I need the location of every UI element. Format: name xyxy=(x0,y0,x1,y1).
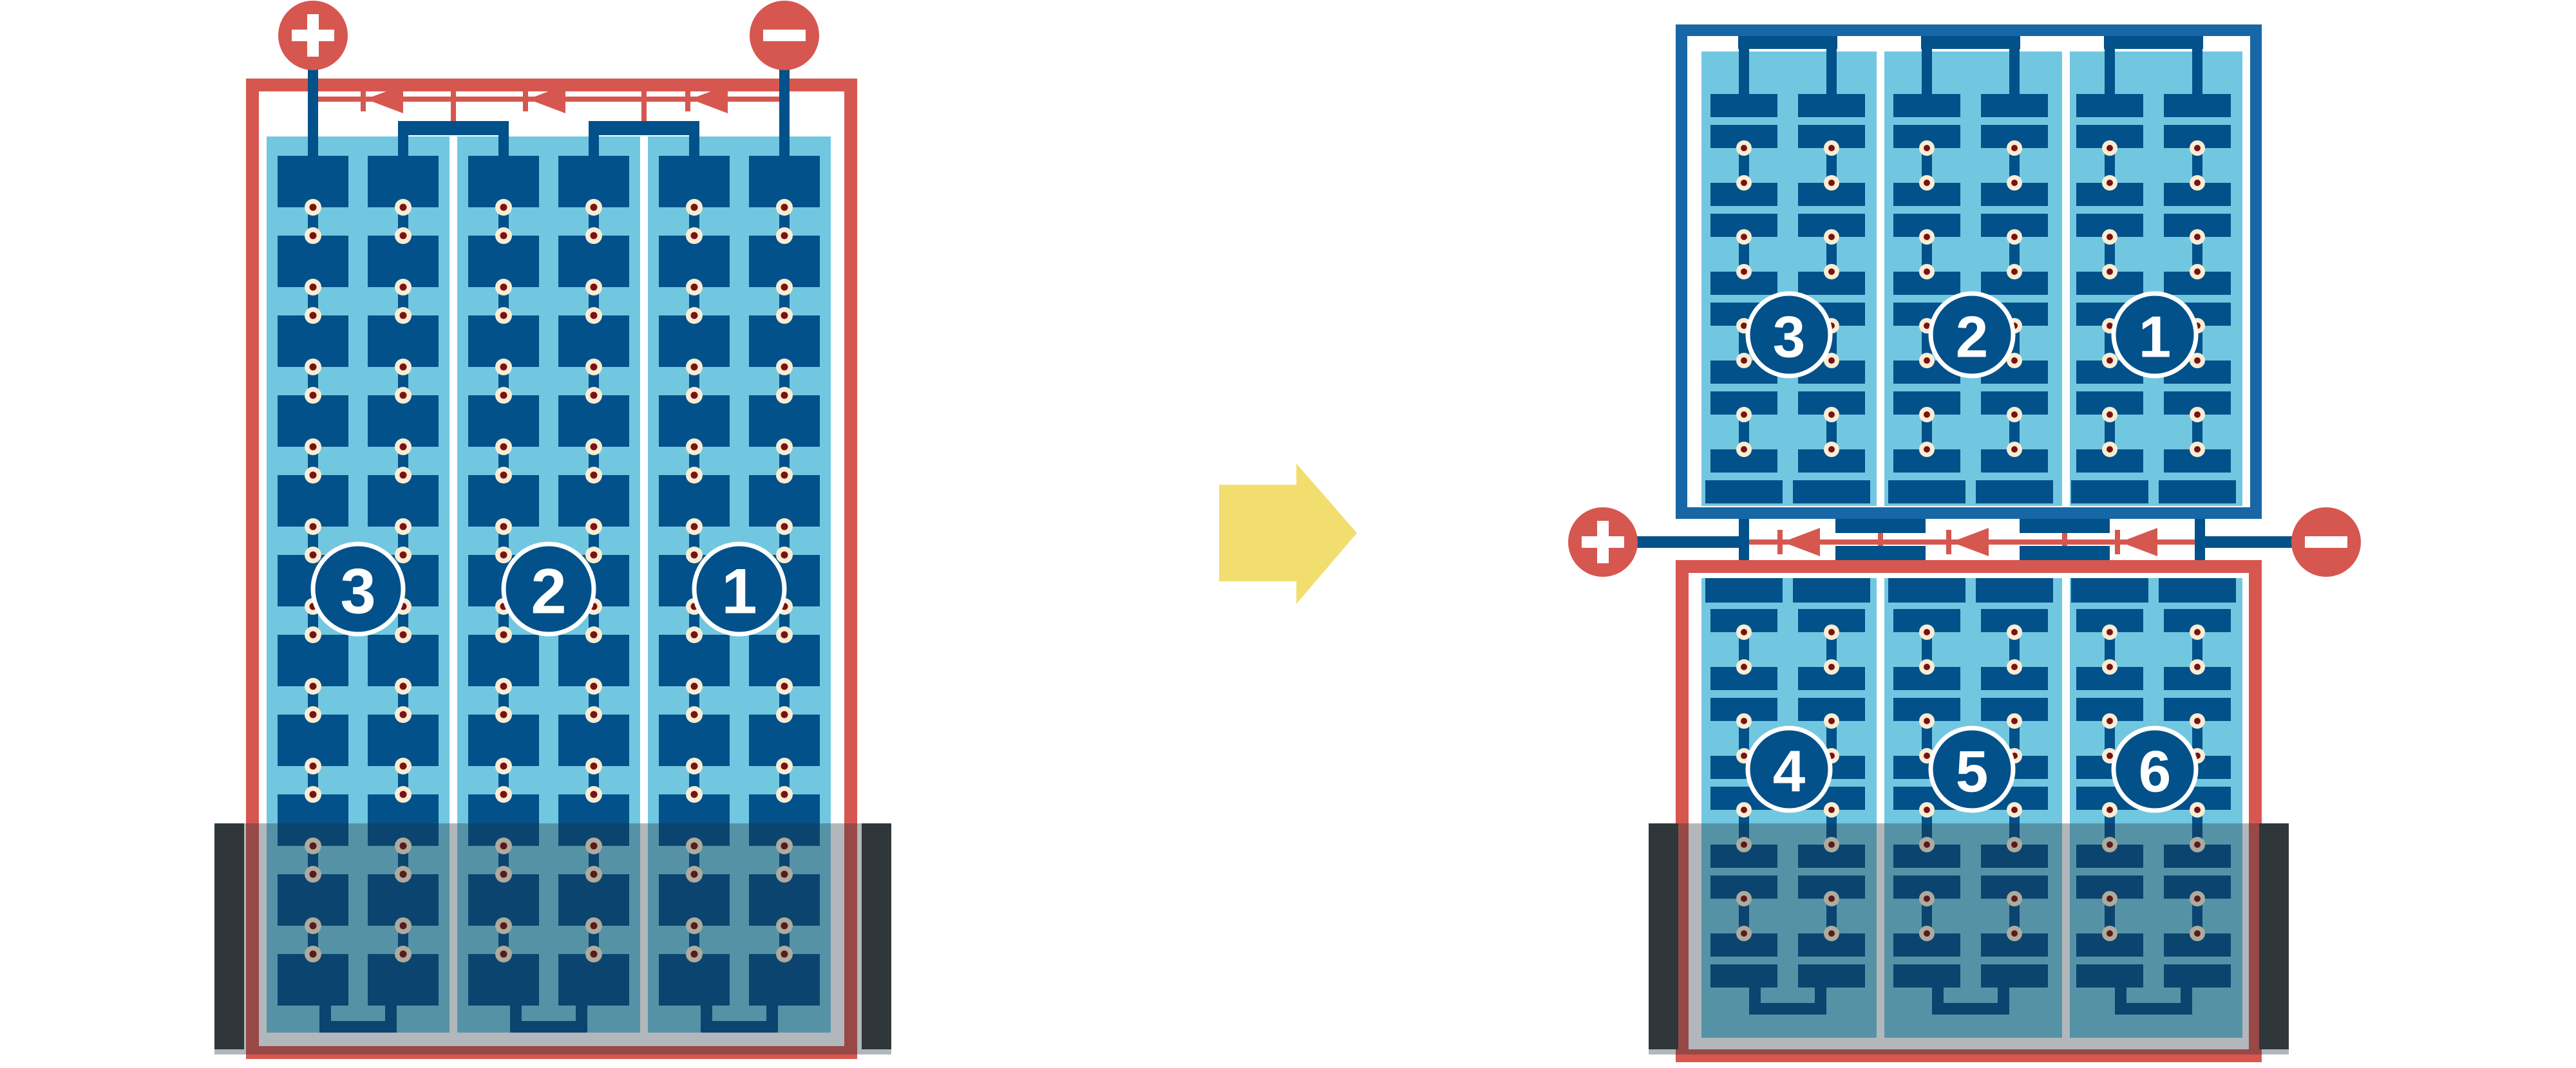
solder-dot-core xyxy=(781,763,788,770)
solder-dot-core xyxy=(1828,180,1835,186)
positive-terminal xyxy=(1568,507,1638,577)
string-label: 1 xyxy=(2139,305,2172,370)
solder-dot-core xyxy=(500,763,507,770)
solder-dot-core xyxy=(310,312,317,319)
solder-dot-core xyxy=(691,232,698,239)
solder-dot-core xyxy=(691,392,698,399)
solder-dot-core xyxy=(2107,180,2113,186)
solder-dot-core xyxy=(400,683,407,690)
pv-cell-wide xyxy=(2159,480,2236,503)
pv-cell-wide xyxy=(1888,578,1965,603)
terminal-lead xyxy=(1634,536,1741,548)
solder-dot-core xyxy=(400,444,407,451)
solder-dot-core xyxy=(1828,664,1835,670)
solder-dot-core xyxy=(2107,807,2113,813)
solder-dot-core xyxy=(2194,807,2201,813)
string-label-circle: 2 xyxy=(504,544,594,634)
solder-dot-core xyxy=(2107,629,2113,635)
solder-dot-core xyxy=(400,472,407,479)
solder-dot-core xyxy=(500,284,507,291)
solder-dot-core xyxy=(500,523,507,530)
solder-dot-core xyxy=(400,552,407,559)
pv-cell-wide xyxy=(1888,480,1965,503)
pv-cell xyxy=(1981,94,2048,117)
solder-dot-core xyxy=(2011,145,2018,151)
pv-cell xyxy=(1798,94,1865,117)
solder-dot-core xyxy=(781,284,788,291)
solder-dot-core xyxy=(1741,807,1747,813)
solder-dot-core xyxy=(1924,268,1930,275)
shade-overlay xyxy=(1649,823,2289,1054)
solder-dot-core xyxy=(781,632,788,639)
solder-dot-core xyxy=(2107,145,2113,151)
solder-dot-core xyxy=(781,444,788,451)
positive-terminal xyxy=(278,1,348,70)
solder-dot-core xyxy=(1828,268,1835,275)
solder-dot-core xyxy=(781,232,788,239)
solder-dot-core xyxy=(1741,446,1747,453)
solder-dot-core xyxy=(591,392,598,399)
solder-dot-core xyxy=(1924,664,1930,670)
string-label: 3 xyxy=(340,556,375,628)
solder-dot-core xyxy=(691,472,698,479)
bus-stub xyxy=(451,88,456,122)
solder-dot-core xyxy=(591,711,598,718)
solder-dot-core xyxy=(1741,268,1747,275)
solder-dot-core xyxy=(2107,357,2113,364)
solder-dot-core xyxy=(781,364,788,371)
solder-dot-core xyxy=(400,312,407,319)
solder-dot-core xyxy=(310,552,317,559)
solder-dot-core xyxy=(2194,446,2201,453)
pv-cell-wide xyxy=(1793,480,1870,503)
string-label: 1 xyxy=(721,556,757,628)
solder-dot-core xyxy=(500,472,507,479)
solder-dot-core xyxy=(1924,234,1930,240)
solder-dot-core xyxy=(591,552,598,559)
shade-overlay xyxy=(214,823,891,1054)
negative-terminal xyxy=(2291,507,2361,577)
solder-dot-core xyxy=(400,392,407,399)
string-label: 5 xyxy=(1956,740,1989,805)
junction-tab-top xyxy=(1835,519,1926,533)
solder-dot-core xyxy=(2011,446,2018,453)
solder-dot-core xyxy=(500,232,507,239)
solder-dot-core xyxy=(1741,664,1747,670)
solder-dot-core xyxy=(500,791,507,798)
solder-dot-core xyxy=(1828,357,1835,364)
solder-dot-core xyxy=(310,791,317,798)
string-label: 3 xyxy=(1773,305,1806,370)
pv-cell xyxy=(1893,94,1960,117)
solder-dot-core xyxy=(1828,718,1835,724)
pv-cell-wide xyxy=(2159,578,2236,603)
solder-dot-core xyxy=(1924,807,1930,813)
string-label-circle: 4 xyxy=(1748,728,1830,810)
solder-dot-core xyxy=(1828,807,1835,813)
solder-dot-core xyxy=(591,312,598,319)
junction-tab-top xyxy=(2020,519,2110,533)
string-label-circle: 1 xyxy=(694,544,784,634)
string-label-circle: 6 xyxy=(2114,728,2196,810)
string-label: 4 xyxy=(1773,740,1806,805)
string-label-circle: 1 xyxy=(2114,294,2196,376)
solder-dot-core xyxy=(310,284,317,291)
minus-icon xyxy=(2305,536,2347,548)
string-label: 2 xyxy=(1956,305,1989,370)
solder-dot-core xyxy=(591,791,598,798)
string-separator xyxy=(1877,52,1884,506)
solder-dot-core xyxy=(2194,268,2201,275)
pv-cell-wide xyxy=(1976,480,2053,503)
solder-dot-core xyxy=(691,523,698,530)
solder-dot-core xyxy=(781,392,788,399)
solder-dot-core xyxy=(2011,629,2018,635)
solder-dot-core xyxy=(591,632,598,639)
solder-dot-core xyxy=(310,232,317,239)
solder-dot-core xyxy=(1741,718,1747,724)
string-label-circle: 3 xyxy=(313,544,403,634)
solder-dot-core xyxy=(2011,268,2018,275)
solder-dot-core xyxy=(2011,807,2018,813)
solder-dot-core xyxy=(691,204,698,211)
solder-dot-core xyxy=(691,711,698,718)
solder-dot-core xyxy=(500,392,507,399)
solder-dot-core xyxy=(591,232,598,239)
solder-dot-core xyxy=(1924,446,1930,453)
pv-cell-wide xyxy=(1705,578,1783,603)
junction-tab-bottom xyxy=(1835,546,1926,560)
solder-dot-core xyxy=(2194,180,2201,186)
solder-dot-core xyxy=(500,632,507,639)
right-top-module: 321 xyxy=(1681,30,2256,513)
solder-dot-core xyxy=(591,523,598,530)
solder-dot-core xyxy=(500,711,507,718)
solder-dot-core xyxy=(781,711,788,718)
solder-dot-core xyxy=(1741,629,1747,635)
pv-cell xyxy=(2076,94,2143,117)
solder-dot-core xyxy=(400,364,407,371)
solder-dot-core xyxy=(2194,629,2201,635)
solder-dot-core xyxy=(310,204,317,211)
solder-dot-core xyxy=(1924,753,1930,759)
string-label-circle: 2 xyxy=(1931,294,2013,376)
solder-dot-core xyxy=(400,284,407,291)
solder-dot-core xyxy=(1741,145,1747,151)
right-shade-band xyxy=(1649,823,2289,1054)
solder-dot-core xyxy=(1741,411,1747,418)
solder-dot-core xyxy=(2011,411,2018,418)
string-label-circle: 5 xyxy=(1931,728,2013,810)
solder-dot-core xyxy=(400,763,407,770)
pv-cell-wide xyxy=(2071,578,2148,603)
solder-dot-core xyxy=(1924,357,1930,364)
minus-icon xyxy=(763,30,806,41)
solder-dot-core xyxy=(781,204,788,211)
string-separator xyxy=(2062,52,2070,506)
solder-dot-core xyxy=(691,444,698,451)
solder-dot-core xyxy=(691,312,698,319)
solder-dot-core xyxy=(1828,446,1835,453)
string-label-circle: 3 xyxy=(1748,294,1830,376)
pv-string-shading-diagram: 321321456 xyxy=(0,0,2576,1068)
plus-icon xyxy=(307,14,319,57)
plus-icon xyxy=(1597,521,1609,563)
solder-dot-core xyxy=(1828,629,1835,635)
solder-dot-core xyxy=(1924,718,1930,724)
solder-dot-core xyxy=(781,472,788,479)
solder-dot-core xyxy=(691,284,698,291)
solder-dot-core xyxy=(1828,411,1835,418)
solder-dot-core xyxy=(2194,411,2201,418)
right-top-panel xyxy=(1701,52,2242,506)
solder-dot-core xyxy=(1741,234,1747,240)
solder-dot-core xyxy=(2107,446,2113,453)
solder-dot-core xyxy=(310,632,317,639)
solder-dot-core xyxy=(500,204,507,211)
solder-dot-core xyxy=(400,523,407,530)
solder-dot-core xyxy=(2194,664,2201,670)
solder-dot-core xyxy=(2194,234,2201,240)
solder-dot-core xyxy=(2011,357,2018,364)
terminal-post xyxy=(779,65,790,156)
solder-dot-core xyxy=(400,711,407,718)
solder-dot-core xyxy=(2107,268,2113,275)
pv-cell-wide xyxy=(2071,480,2148,503)
solder-dot-core xyxy=(781,791,788,798)
solder-dot-core xyxy=(310,444,317,451)
solder-dot-core xyxy=(310,523,317,530)
solder-dot-core xyxy=(2107,234,2113,240)
string-label: 6 xyxy=(2139,740,2172,805)
negative-terminal xyxy=(750,1,819,70)
left-shade-band xyxy=(214,823,891,1054)
solder-dot-core xyxy=(691,791,698,798)
solder-dot-core xyxy=(691,364,698,371)
solder-dot-core xyxy=(781,312,788,319)
solder-dot-core xyxy=(310,711,317,718)
solder-dot-core xyxy=(591,472,598,479)
solder-dot-core xyxy=(500,683,507,690)
solder-dot-core xyxy=(691,632,698,639)
solder-dot-core xyxy=(2011,234,2018,240)
solder-dot-core xyxy=(2107,664,2113,670)
solder-dot-core xyxy=(2107,411,2113,418)
solder-dot-core xyxy=(500,552,507,559)
solder-dot-core xyxy=(591,683,598,690)
solder-dot-core xyxy=(591,204,598,211)
pv-cell-wide xyxy=(1793,578,1870,603)
solder-dot-core xyxy=(591,284,598,291)
solder-dot-core xyxy=(1741,180,1747,186)
solder-dot-core xyxy=(2011,718,2018,724)
pv-cell-wide xyxy=(1976,578,2053,603)
solder-dot-core xyxy=(591,444,598,451)
solder-dot-core xyxy=(781,552,788,559)
solder-dot-core xyxy=(1924,145,1930,151)
terminal-post xyxy=(308,65,318,156)
solder-dot-core xyxy=(2194,718,2201,724)
solder-dot-core xyxy=(1924,411,1930,418)
terminal-lead xyxy=(2202,536,2295,548)
solder-dot-core xyxy=(591,364,598,371)
solder-dot-core xyxy=(591,763,598,770)
solder-dot-core xyxy=(1828,145,1835,151)
solder-dot-core xyxy=(500,364,507,371)
string-label: 2 xyxy=(531,556,566,628)
solder-dot-core xyxy=(400,204,407,211)
solder-dot-core xyxy=(2107,753,2113,759)
solder-dot-core xyxy=(310,364,317,371)
solder-dot-core xyxy=(781,523,788,530)
solder-dot-core xyxy=(1924,180,1930,186)
solder-dot-core xyxy=(310,683,317,690)
solder-dot-core xyxy=(2011,180,2018,186)
solder-dot-core xyxy=(400,232,407,239)
solder-dot-core xyxy=(2107,718,2113,724)
pv-cell xyxy=(2164,94,2231,117)
solder-dot-core xyxy=(500,312,507,319)
solder-dot-core xyxy=(781,683,788,690)
solder-dot-core xyxy=(310,763,317,770)
solder-dot-core xyxy=(400,632,407,639)
solder-dot-core xyxy=(691,683,698,690)
solder-dot-core xyxy=(691,763,698,770)
solder-dot-core xyxy=(1828,234,1835,240)
solder-dot-core xyxy=(1924,629,1930,635)
solder-dot-core xyxy=(310,392,317,399)
pv-cell xyxy=(1710,94,1777,117)
solder-dot-core xyxy=(1741,753,1747,759)
solder-dot-core xyxy=(691,552,698,559)
solder-dot-core xyxy=(500,444,507,451)
solder-dot-core xyxy=(1741,357,1747,364)
solder-dot-core xyxy=(2194,357,2201,364)
solder-dot-core xyxy=(310,472,317,479)
pv-cell-wide xyxy=(1705,480,1783,503)
solder-dot-core xyxy=(2194,145,2201,151)
bus-stub xyxy=(641,88,647,122)
solder-dot-core xyxy=(400,791,407,798)
junction-tab-bottom xyxy=(2020,546,2110,560)
solder-dot-core xyxy=(2011,664,2018,670)
